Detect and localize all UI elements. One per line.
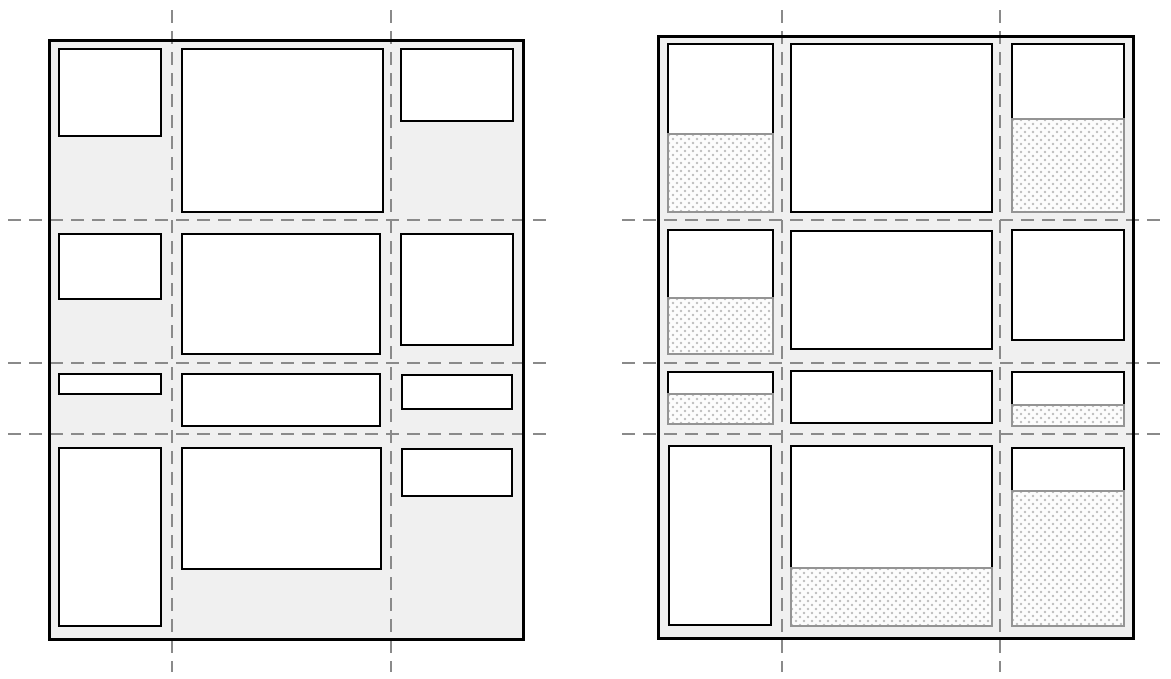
diagram-canvas bbox=[0, 0, 1171, 679]
grid-container-frame bbox=[657, 35, 1135, 640]
grid-container-frame bbox=[48, 39, 525, 641]
